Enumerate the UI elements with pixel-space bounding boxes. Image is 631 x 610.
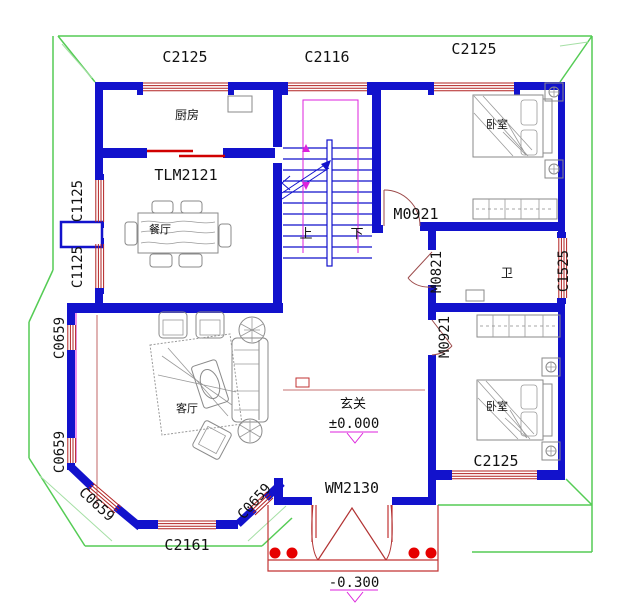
window-label-c2125-top-right: C2125: [451, 40, 496, 58]
stair-walk-line: [282, 160, 331, 199]
door-label-wm2130: WM2130: [325, 479, 379, 497]
porch-column: [426, 548, 437, 559]
eave-outline: [29, 36, 592, 552]
window-label-c1125-lower: C1125: [70, 246, 86, 288]
level-label-porch: -0.300: [329, 575, 380, 591]
porch-column: [287, 548, 298, 559]
door-label-m0921-top: M0921: [393, 205, 438, 223]
window-c2161-bay: [158, 521, 216, 529]
window-c0659-upper: [68, 325, 76, 350]
window-c2125-top-left: [143, 83, 228, 91]
stair-stringer: [327, 140, 332, 266]
window-label-c0659-upper: C0659: [52, 317, 68, 359]
porch-column: [270, 548, 281, 559]
kitchen-furniture: [228, 96, 252, 112]
window-c2125-bottom: [452, 471, 537, 479]
porch-column: [409, 548, 420, 559]
door-label-m0921-bottom: M0921: [437, 316, 453, 358]
room-label-dining: 餐厅: [149, 222, 171, 236]
bathroom-fixtures: [466, 290, 484, 301]
room-label-bedroom-bottom: 卧室: [486, 399, 508, 413]
window-label-c2125-bottom: C2125: [473, 452, 518, 470]
floor-plan-drawing: C2125 C2116 C2125 TLM2121 M0921 C1125 C1…: [0, 0, 631, 610]
window-label-c2116-top: C2116: [304, 48, 349, 66]
wall-pier-box: [61, 222, 102, 247]
window-label-c0659-lower: C0659: [52, 431, 68, 473]
door-label-tlm2121: TLM2121: [154, 166, 217, 184]
living-room-furniture: [150, 312, 268, 460]
window-label-c2161: C2161: [164, 536, 209, 554]
porch: [268, 505, 438, 571]
door-tlm2121-sliding: [147, 151, 225, 156]
level-label-entry: ±0.000: [329, 416, 380, 432]
window-c2125-top-right: [434, 83, 514, 91]
door-wm2130-entry: [312, 505, 392, 560]
room-label-living: 客厅: [176, 401, 198, 415]
door-label-m0821: M0821: [429, 251, 445, 293]
staircase: [282, 100, 372, 266]
window-label-c2125-top-left: C2125: [162, 48, 207, 66]
stair-label-down: 下: [350, 226, 363, 241]
window-label-c1125-upper: C1125: [70, 180, 86, 222]
window-c2116-top: [288, 83, 367, 91]
bedroom-top-furniture: [473, 83, 563, 219]
floor-plan-sheet: C2125 C2116 C2125 TLM2121 M0921 C1125 C1…: [0, 0, 631, 610]
room-label-bedroom-top: 卧室: [486, 117, 508, 131]
dining-table-set: [125, 201, 231, 267]
window-label-c1525: C1525: [556, 250, 572, 292]
room-label-bath: 卫: [501, 266, 513, 280]
bedroom-bottom-furniture: [477, 315, 560, 460]
room-label-entry: 玄关: [340, 396, 366, 411]
hallway-accents: [97, 315, 425, 505]
stair-label-up: 上: [299, 226, 312, 241]
window-c1125-lower: [96, 244, 104, 288]
window-label-c0659-bay-left: C0659: [75, 485, 117, 525]
window-c1125-upper: [96, 180, 104, 222]
window-c0659-lower: [68, 438, 76, 463]
room-label-kitchen: 厨房: [175, 107, 199, 122]
